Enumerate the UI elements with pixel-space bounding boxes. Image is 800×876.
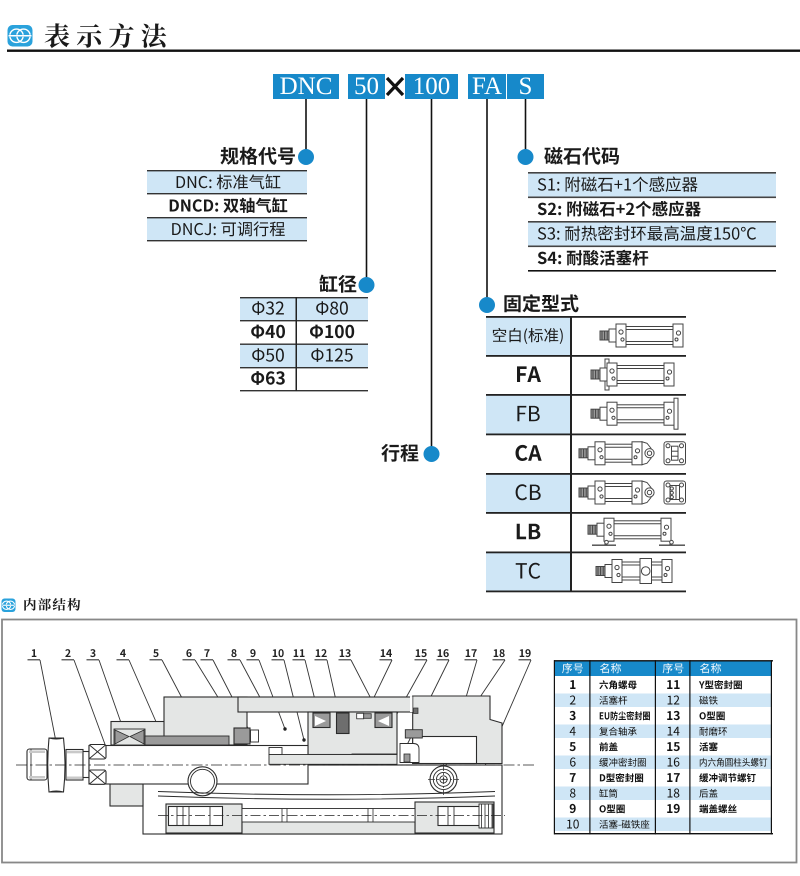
svg-text:50: 50 [354,73,379,100]
svg-text:S: S [519,73,533,100]
svg-text:100: 100 [413,73,451,100]
svg-text:DNC: DNC [280,73,333,100]
svg-text:FA: FA [472,73,502,100]
